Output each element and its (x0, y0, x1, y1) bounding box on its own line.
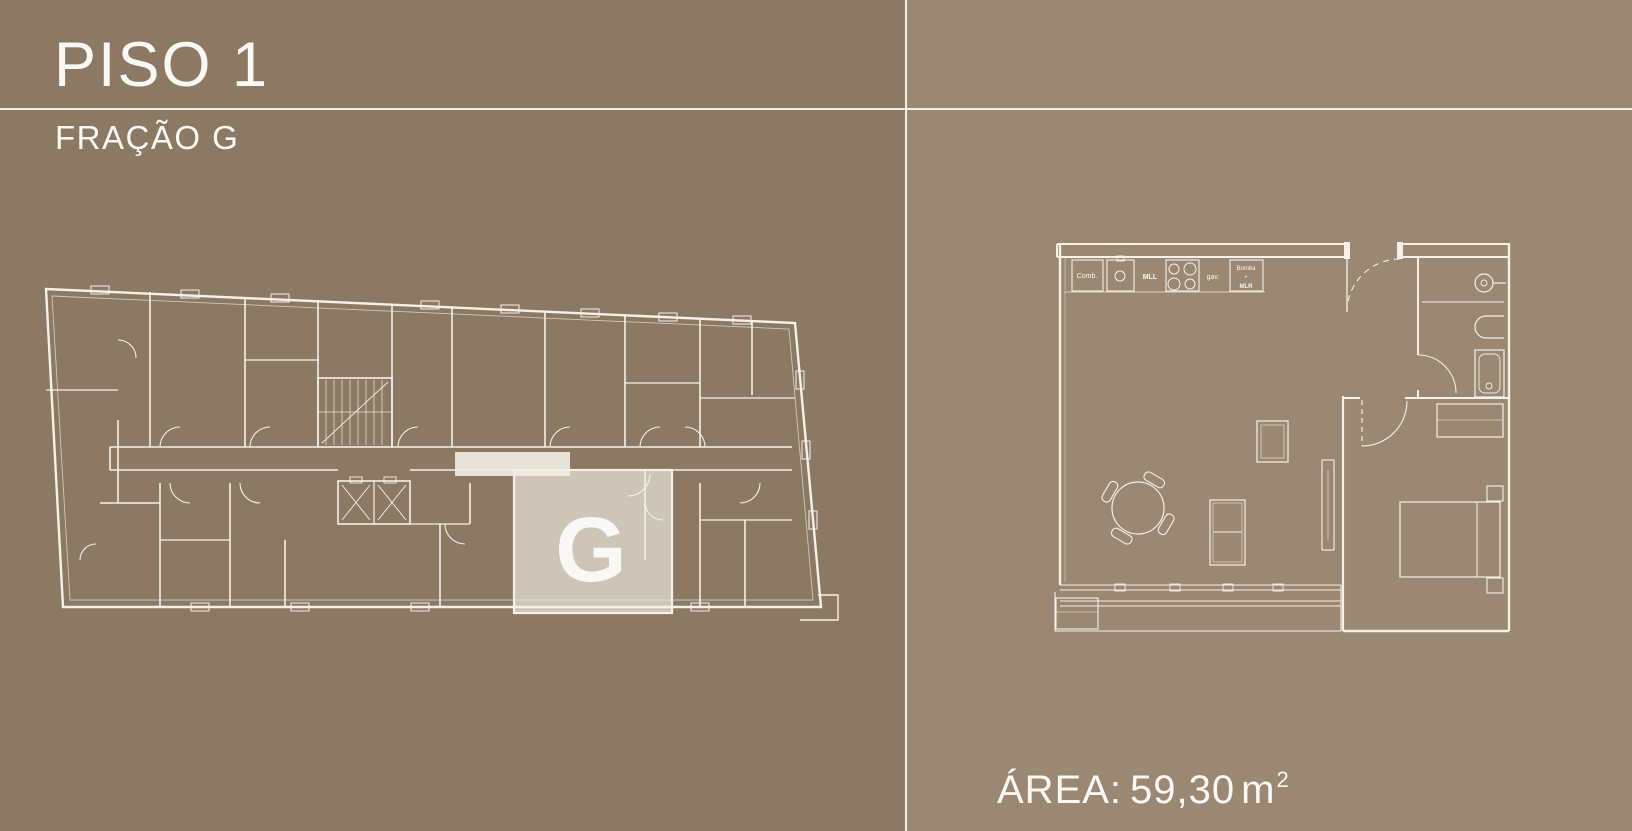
kitchen-label-bomba: Bomba + MLR (1236, 266, 1256, 290)
nightstand-icon (1487, 578, 1503, 593)
entrance-door (1347, 259, 1400, 312)
page: PISO 1 FRAÇÃO G G (0, 0, 1632, 831)
nightstand-icon (1487, 486, 1503, 501)
page-title: PISO 1 (54, 34, 269, 97)
area-exponent: 2 (1276, 767, 1289, 792)
tv-unit-icon (1322, 460, 1334, 550)
bathroom-door (1418, 355, 1456, 393)
elevator-icon (338, 477, 410, 524)
bedroom-door (1362, 400, 1407, 446)
page-subtitle: FRAÇÃO G (55, 121, 239, 154)
cooktop-icon (1166, 260, 1199, 291)
kitchen-label-mll: MLL (1143, 274, 1158, 281)
svg-text:MLR: MLR (1240, 284, 1254, 290)
planter-icon (1056, 598, 1098, 629)
kitchen-label-gav: gav. (1207, 274, 1220, 281)
apartment-detail-plan: Comb. MLL gav. Bomba + MLR (1040, 228, 1525, 648)
vertical-divider (905, 0, 907, 831)
area-value: 59,30 (1130, 768, 1235, 812)
sideboard-icon (1210, 500, 1245, 565)
wardrobe-icon (1437, 404, 1503, 437)
svg-text:Bomba: Bomba (1236, 266, 1256, 272)
area-caption: ÁREA:59,30m2 (997, 770, 1290, 810)
interior-walls-bottom (160, 483, 792, 607)
side-table-icon (1257, 421, 1288, 462)
kitchen-counter: Comb. MLL gav. Bomba + MLR (1065, 256, 1265, 292)
balcony (1055, 592, 1341, 631)
window-ticks (91, 286, 817, 611)
horizontal-divider (0, 108, 1632, 110)
building-overview-plan: G (30, 255, 840, 630)
building-outline (46, 289, 838, 620)
unit-g-label: G (555, 499, 627, 601)
kitchen-sink-icon (1107, 256, 1134, 291)
bathtub-icon (1475, 350, 1504, 397)
washbasin-icon (1475, 274, 1506, 292)
svg-text:+: + (1244, 275, 1248, 281)
interior-walls-top (46, 292, 795, 447)
window-band (1060, 584, 1341, 631)
area-unit: m (1241, 768, 1275, 812)
corridor-walls (110, 447, 792, 476)
dining-table-icon (1100, 470, 1175, 545)
bed-icon (1400, 502, 1500, 577)
toilet-icon (1475, 316, 1504, 338)
area-label: ÁREA: (997, 768, 1122, 812)
kitchen-label-comb: Comb. (1077, 273, 1098, 280)
stairs-icon (318, 378, 392, 447)
